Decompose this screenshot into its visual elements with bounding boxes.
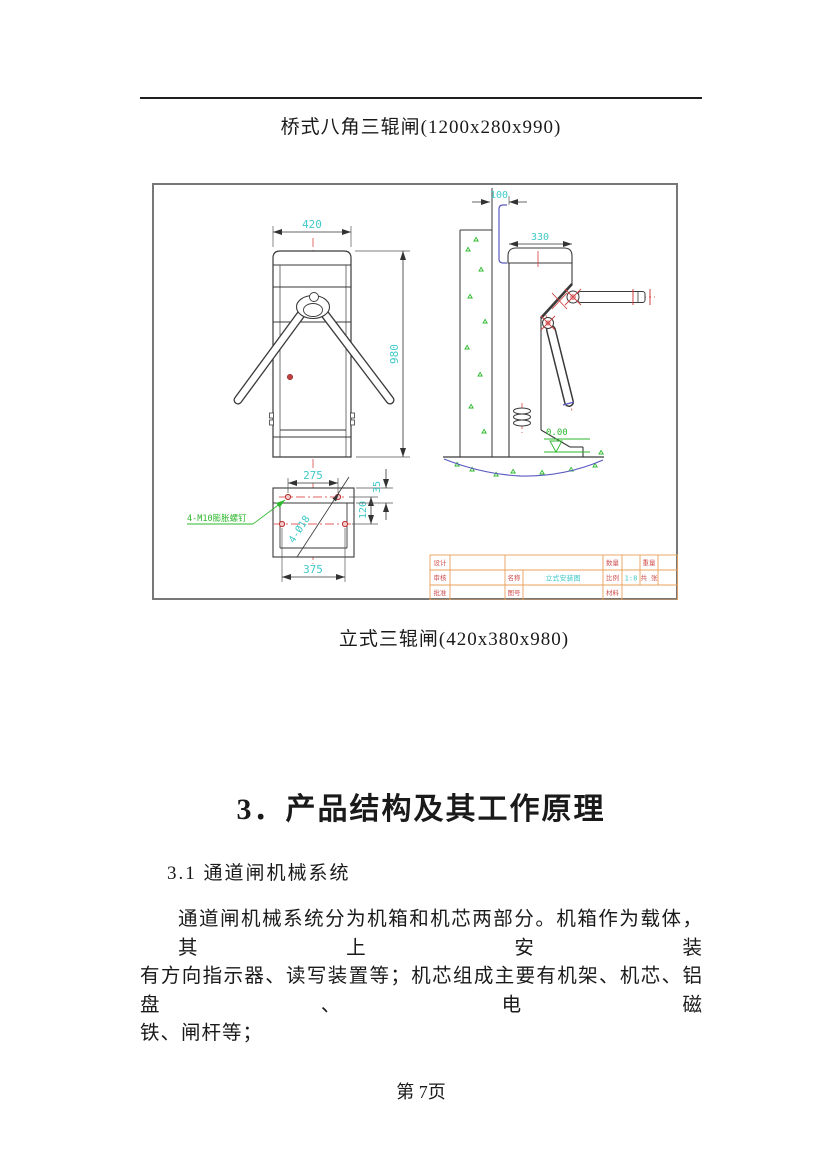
tb-drawing-no: 图号 <box>508 589 522 597</box>
tb-scale-value: 1:8 <box>625 575 638 583</box>
header-rule <box>140 97 702 99</box>
arm-upper-side <box>569 289 655 305</box>
tb-name-value: 立式安装图 <box>546 574 581 583</box>
dim-plate-edge-offset: 35 <box>372 481 383 493</box>
tb-scale: 比例 <box>606 573 619 582</box>
anchor-note-text: 4-M10膨胀螺钉 <box>187 513 247 524</box>
paragraph-line-2: 有方向指示器、读写装置等；机芯组成主要有机架、机芯、铝盘、电磁 <box>140 959 703 1017</box>
drawing-frame <box>153 184 677 599</box>
dim-plate-width: 375 <box>303 563 323 576</box>
paragraph-line-1: 通道闸机械系统分为机箱和机芯两部分。机箱作为载体，其上安装 <box>140 902 703 960</box>
document-page: 桥式八角三辊闸(1200x280x990) 420 980 <box>0 0 827 1167</box>
tb-approve: 批准 <box>434 588 448 597</box>
paragraph-line-3: 铁、闸杆等； <box>140 1016 703 1045</box>
section-heading: 3．产品结构及其工作原理 <box>140 784 702 828</box>
hub-lower-side <box>541 316 555 330</box>
ground-level-text: 0.00 <box>546 428 568 438</box>
indicator-dot <box>287 374 293 380</box>
tb-quantity: 数量 <box>606 558 620 567</box>
technical-drawing: 420 980 <box>152 183 678 600</box>
dim-cabinet-depth: 330 <box>531 232 549 243</box>
hub-upper-side <box>565 289 581 305</box>
tb-name: 名称 <box>508 573 522 582</box>
dim-front-height: 980 <box>388 344 401 364</box>
page-number: 第 7页 <box>140 1078 702 1104</box>
tb-design: 设计 <box>434 558 448 567</box>
dim-front-width: 420 <box>302 218 322 231</box>
tb-review: 审核 <box>434 573 448 582</box>
subsection-heading: 3.1 通道闸机械系统 <box>167 858 727 885</box>
figure-caption: 立式三辊闸(420x380x980) <box>174 624 734 651</box>
tb-weight: 重量 <box>643 559 657 567</box>
dim-plate-hole-span: 275 <box>303 469 323 482</box>
tb-material: 材料 <box>606 588 620 597</box>
dim-plate-hole-pitch: 120 <box>358 501 369 519</box>
dim-wall-gap: 100 <box>490 190 508 201</box>
figure-title-top: 桥式八角三辊闸(1200x280x990) <box>140 112 702 139</box>
tb-sheets: 共 张 <box>641 573 658 582</box>
